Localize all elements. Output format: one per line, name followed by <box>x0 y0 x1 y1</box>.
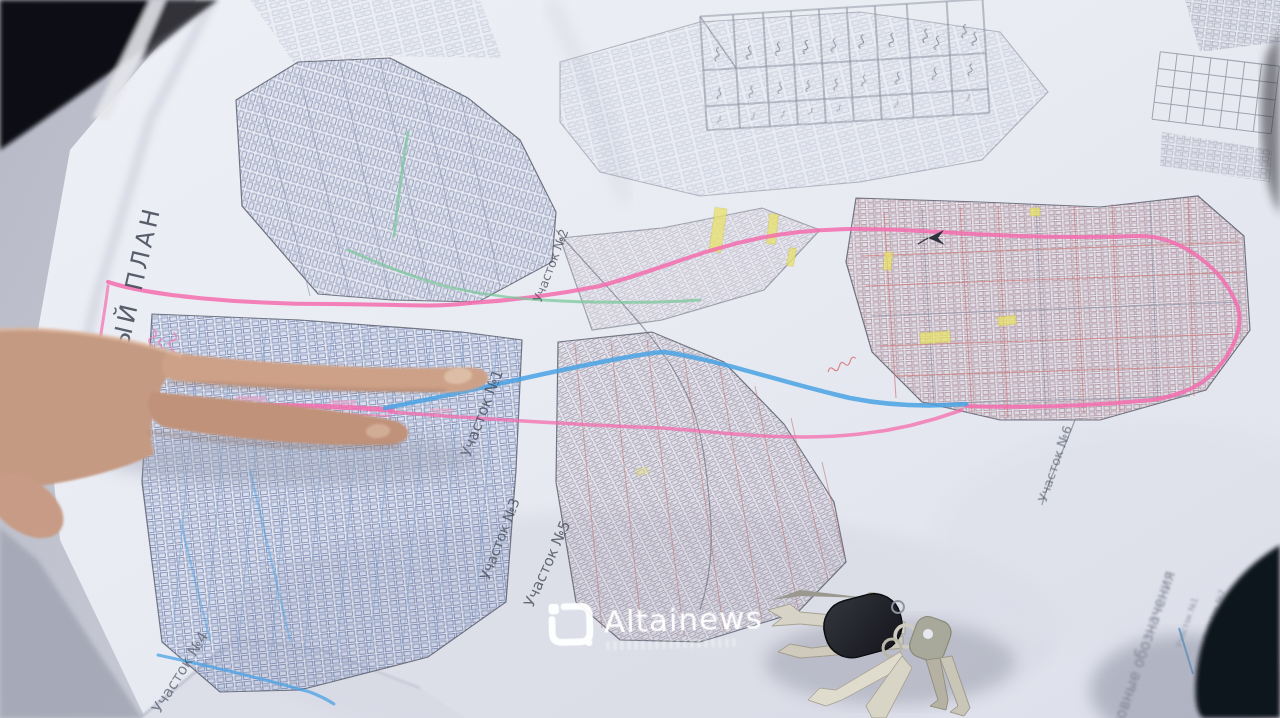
map-photo-canvas: ННЫЙ ПЛАН Участок №1 Участок №2 Участок … <box>0 0 1280 718</box>
photo-of-map: ННЫЙ ПЛАН Участок №1 Участок №2 Участок … <box>0 0 1280 718</box>
key-head-hole <box>923 629 933 639</box>
